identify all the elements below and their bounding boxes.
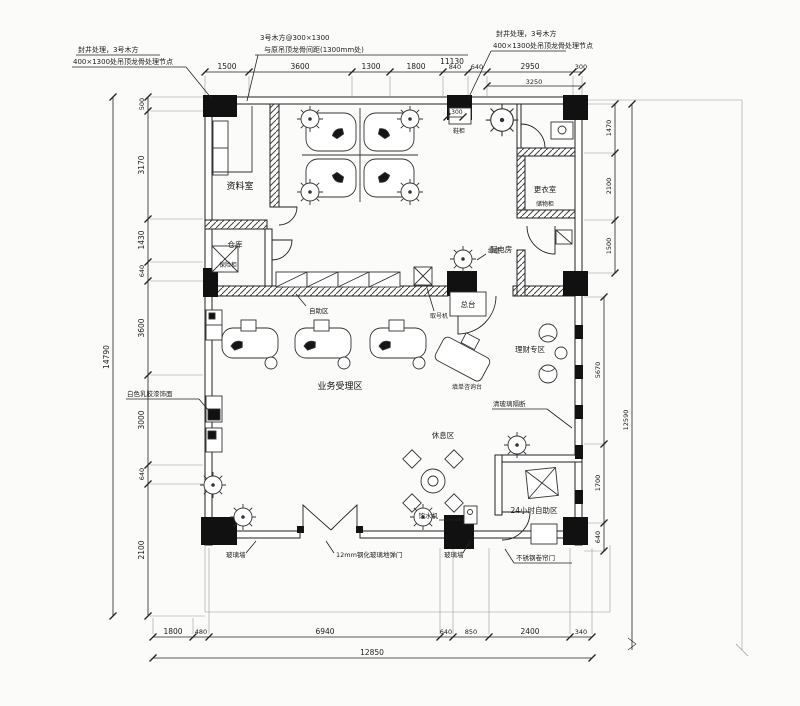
dim-right-0: 1470 — [605, 120, 613, 137]
note-water: 饮水机 — [419, 511, 439, 520]
dim-bottom-5: 2400 — [520, 627, 539, 636]
dimension-labels: 1500 3600 1300 1800 840 640 2950 300 325… — [102, 57, 630, 657]
dim-left-overall: 14790 — [102, 345, 111, 369]
dim-left-0: 500 — [138, 98, 146, 110]
room-storage: 仓库 — [228, 239, 243, 249]
dim-left-4: 3600 — [137, 318, 146, 337]
dim-bottom-6: 340 — [575, 628, 587, 636]
room-changing: 更衣室 — [534, 184, 557, 194]
dim-right-5: 640 — [594, 531, 602, 543]
room-form-desk: 填单咨询台 — [452, 383, 482, 391]
room-business: 业务受理区 — [317, 380, 362, 392]
note-glass-wall-left: 玻璃墙 — [226, 550, 246, 559]
dim-right-overall: 12590 — [622, 410, 630, 431]
note-left-wall: 白色乳胶漆饰面 — [127, 389, 173, 398]
note-entrance-door: 12mm钢化玻璃地弹门 — [336, 550, 402, 559]
dim-top-5: 640 — [471, 63, 483, 71]
dim-top-3: 1800 — [406, 62, 425, 71]
room-reception: 总台 — [461, 299, 476, 309]
dim-left-5: 3000 — [137, 410, 146, 429]
dimension-ticks — [110, 69, 636, 662]
dim-bottom-2: 6940 — [315, 627, 334, 636]
note-top-left-2: 400×1300处吊顶龙骨处理节点 — [73, 57, 173, 66]
dim-top-sub: 3250 — [526, 78, 543, 86]
note-glass-wall-right: 玻璃墙 — [444, 550, 464, 559]
note-top-center-2: 与原吊顶龙骨间距(1300mm处) — [264, 45, 364, 54]
dim-bottom-1: 480 — [195, 628, 207, 636]
dim-right-1: 2100 — [605, 178, 613, 195]
dim-vestibule: 1300 — [447, 109, 462, 116]
room-power: 配电房 — [490, 244, 513, 254]
dim-top-1: 3600 — [290, 62, 309, 71]
note-top-center-1: 3号木方@300×1300 — [260, 33, 330, 42]
dim-top-6: 2950 — [520, 62, 539, 71]
room-safe: 保险柜 — [219, 261, 237, 269]
dim-right-4: 1700 — [594, 475, 602, 492]
dim-bottom-0: 1800 — [163, 627, 182, 636]
dim-top-7: 300 — [575, 63, 587, 71]
room-self-service: 24小时自助区 — [510, 505, 558, 515]
floor-plan-drawing: 1500 3600 1300 1800 840 640 2950 300 325… — [0, 0, 800, 706]
dim-left-3: 640 — [138, 265, 146, 277]
note-top-right-1: 封井处理，3号木方 — [496, 29, 556, 38]
note-glass-partition: 清玻璃隔断 — [493, 399, 526, 408]
dim-left-6: 640 — [138, 468, 146, 480]
room-wealth: 理财专区 — [515, 344, 545, 354]
room-rest: 休息区 — [432, 430, 455, 440]
dim-top-0: 1500 — [217, 62, 236, 71]
note-top-right-2: 400×1300处吊顶龙骨处理节点 — [493, 41, 593, 50]
room-archive: 资料室 — [226, 180, 253, 192]
dim-bottom-3: 640 — [440, 628, 452, 636]
dim-bottom-4: 850 — [465, 628, 477, 636]
dim-left-7: 2100 — [137, 540, 146, 559]
room-shoe: 鞋柜 — [453, 127, 465, 135]
dim-left-1: 3170 — [137, 155, 146, 174]
dim-left-2: 1430 — [137, 230, 146, 249]
dim-bottom-overall: 12850 — [360, 648, 384, 657]
dim-right-3: 5670 — [594, 362, 602, 379]
room-locker: 储物柜 — [536, 200, 554, 208]
dim-top-overall: 11130 — [440, 57, 464, 66]
note-top-left-1: 封井处理，3号木方 — [78, 45, 138, 54]
dim-top-2: 1300 — [361, 62, 380, 71]
note-rolling-door: 不锈钢卷帘门 — [516, 553, 555, 562]
floor-plan-sheet: 1500 3600 1300 1800 840 640 2950 300 325… — [0, 0, 800, 706]
note-waiting: 自助区 — [309, 306, 329, 315]
dim-right-2: 1500 — [605, 238, 613, 255]
note-queue-machine: 取号机 — [430, 312, 448, 320]
